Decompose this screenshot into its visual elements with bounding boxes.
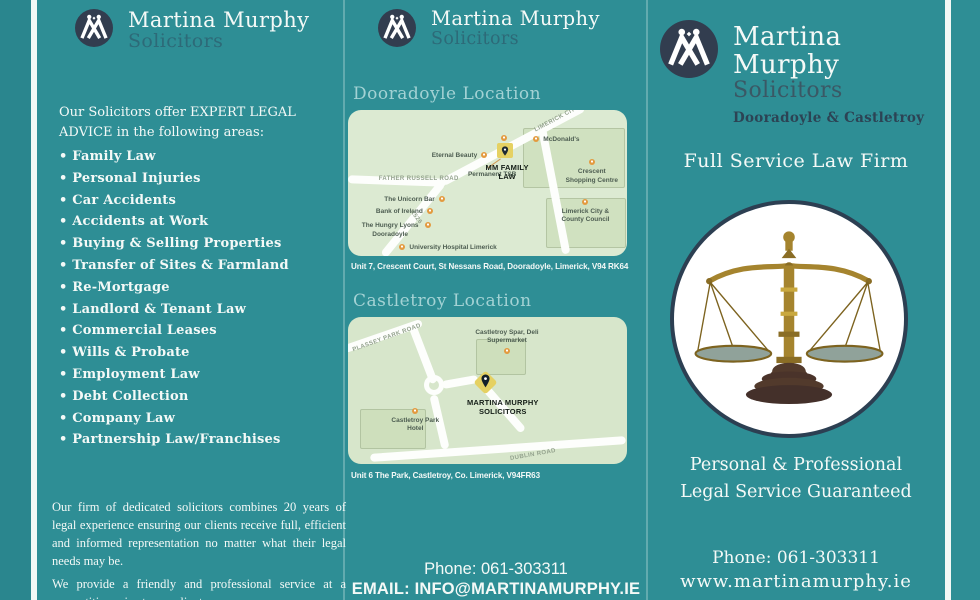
roundabout-icon: [424, 375, 444, 395]
practice-areas-list: Family LawPersonal InjuriesCar Accidents…: [59, 150, 289, 455]
map-label: FATHER RUSSELL ROAD: [379, 176, 459, 184]
practice-area-item: Accidents at Work: [59, 215, 289, 228]
phone-line: Phone: 061-303311: [345, 560, 647, 579]
map-pin-icon: [425, 222, 431, 228]
practice-area-item: Company Law: [59, 412, 289, 425]
about-paragraph-1: Our firm of dedicated solicitors combine…: [52, 498, 346, 571]
brand-subtitle: Solicitors: [128, 31, 309, 51]
map-label: MARTINA MURPHY SOLICITORS: [457, 398, 549, 417]
map-label: Castletroy Spar, Deli Supermarket: [468, 329, 546, 345]
office-marker-icon: [497, 143, 513, 158]
road: [442, 375, 479, 389]
practice-area-item: Employment Law: [59, 368, 289, 381]
practice-area-item: Debt Collection: [59, 390, 289, 403]
guarantee-text: Personal & Professional Legal Service Gu…: [647, 452, 945, 506]
brochure-page: Martina Murphy Solicitors Our Solicitors…: [0, 0, 980, 600]
panel-cover: Martina Murphy Solicitors Dooradoyle & C…: [647, 0, 945, 600]
practice-area-item: Landlord & Tenant Law: [59, 303, 289, 316]
brand-logo-icon: [75, 9, 113, 47]
fold-line-right: [945, 0, 951, 600]
tagline: Full Service Law Firm: [647, 150, 945, 172]
map-pin-icon: [427, 208, 433, 214]
practice-area-item: Re-Mortgage: [59, 281, 289, 294]
brand-logo-icon: [378, 9, 416, 47]
about-paragraph-2: We provide a friendly and professional s…: [52, 575, 346, 600]
brand-name: Martina Murphy: [128, 9, 309, 31]
practice-area-item: Car Accidents: [59, 194, 289, 207]
address-dooradoyle: Unit 7, Crescent Court, St Nessans Road,…: [351, 261, 628, 271]
map-pin-icon: [439, 196, 445, 202]
guarantee-line-1: Personal & Professional: [647, 452, 945, 479]
practice-area-item: Family Law: [59, 150, 289, 163]
map-dooradoyle: LIMERICK CITY → McDonald's Eternal Beaut…: [348, 110, 627, 256]
brand-header: Martina Murphy Solicitors: [378, 9, 600, 48]
practice-area-item: Buying & Selling Properties: [59, 237, 289, 250]
brand-subtitle: Solicitors: [431, 30, 600, 49]
brand-locations: Dooradoyle & Castletroy: [733, 111, 945, 125]
map-label: Permanent TSB: [468, 171, 516, 179]
brand-subtitle: Solicitors: [733, 79, 945, 102]
map-label: Castletroy Park Hotel: [384, 417, 446, 433]
practice-area-item: Personal Injuries: [59, 172, 289, 185]
map-label: Limerick City & County Council: [554, 208, 616, 224]
practice-area-item: Partnership Law/Franchises: [59, 433, 289, 446]
map-label: The Hungry Lyons Dooradoyle: [359, 222, 421, 238]
phone-line: Phone: 061-303311: [647, 548, 945, 568]
location-heading-dooradoyle: Dooradoyle Location: [353, 84, 541, 104]
panel-locations: Martina Murphy Solicitors Dooradoyle Loc…: [345, 0, 647, 600]
email-line: EMAIL: INFO@MARTINAMURPHY.IE: [345, 580, 647, 599]
brand-name: Martina Murphy: [431, 9, 600, 30]
map-label: Crescent Shopping Centre: [563, 168, 621, 184]
location-heading-castletroy: Castletroy Location: [353, 291, 532, 311]
map-label: The Unicorn Bar: [384, 196, 435, 204]
address-castletroy: Unit 6 The Park, Castletroy, Co. Limeric…: [351, 470, 540, 480]
brand-header: Martina Murphy Solicitors Dooradoyle & C…: [660, 20, 945, 126]
website: www.martinamurphy.ie: [647, 571, 945, 592]
brand-logo-icon: [660, 20, 718, 78]
map-pin-icon: [501, 135, 507, 141]
intro-text: Our Solicitors offer EXPERT LEGAL ADVICE…: [59, 103, 317, 143]
map-label: Eternal Beauty: [432, 152, 478, 160]
practice-area-item: Commercial Leases: [59, 324, 289, 337]
brand-header: Martina Murphy Solicitors: [75, 9, 309, 51]
scan-edge: [0, 0, 31, 600]
panel-practice-areas: Martina Murphy Solicitors Our Solicitors…: [37, 0, 345, 600]
office-pin-icon: [479, 374, 492, 389]
scales-of-justice-image: [670, 200, 908, 438]
practice-area-item: Transfer of Sites & Farmland: [59, 259, 289, 272]
map-pin-icon: [504, 348, 510, 354]
brand-name: Martina Murphy: [733, 24, 945, 79]
guarantee-line-2: Legal Service Guaranteed: [647, 479, 945, 506]
map-label: McDonald's: [543, 136, 579, 144]
map-castletroy: PLASSEY PARK ROAD Castletroy Spar, Deli …: [348, 317, 627, 464]
map-pin-icon: [399, 244, 405, 250]
practice-area-item: Wills & Probate: [59, 346, 289, 359]
map-label: University Hospital Limerick: [409, 244, 496, 252]
